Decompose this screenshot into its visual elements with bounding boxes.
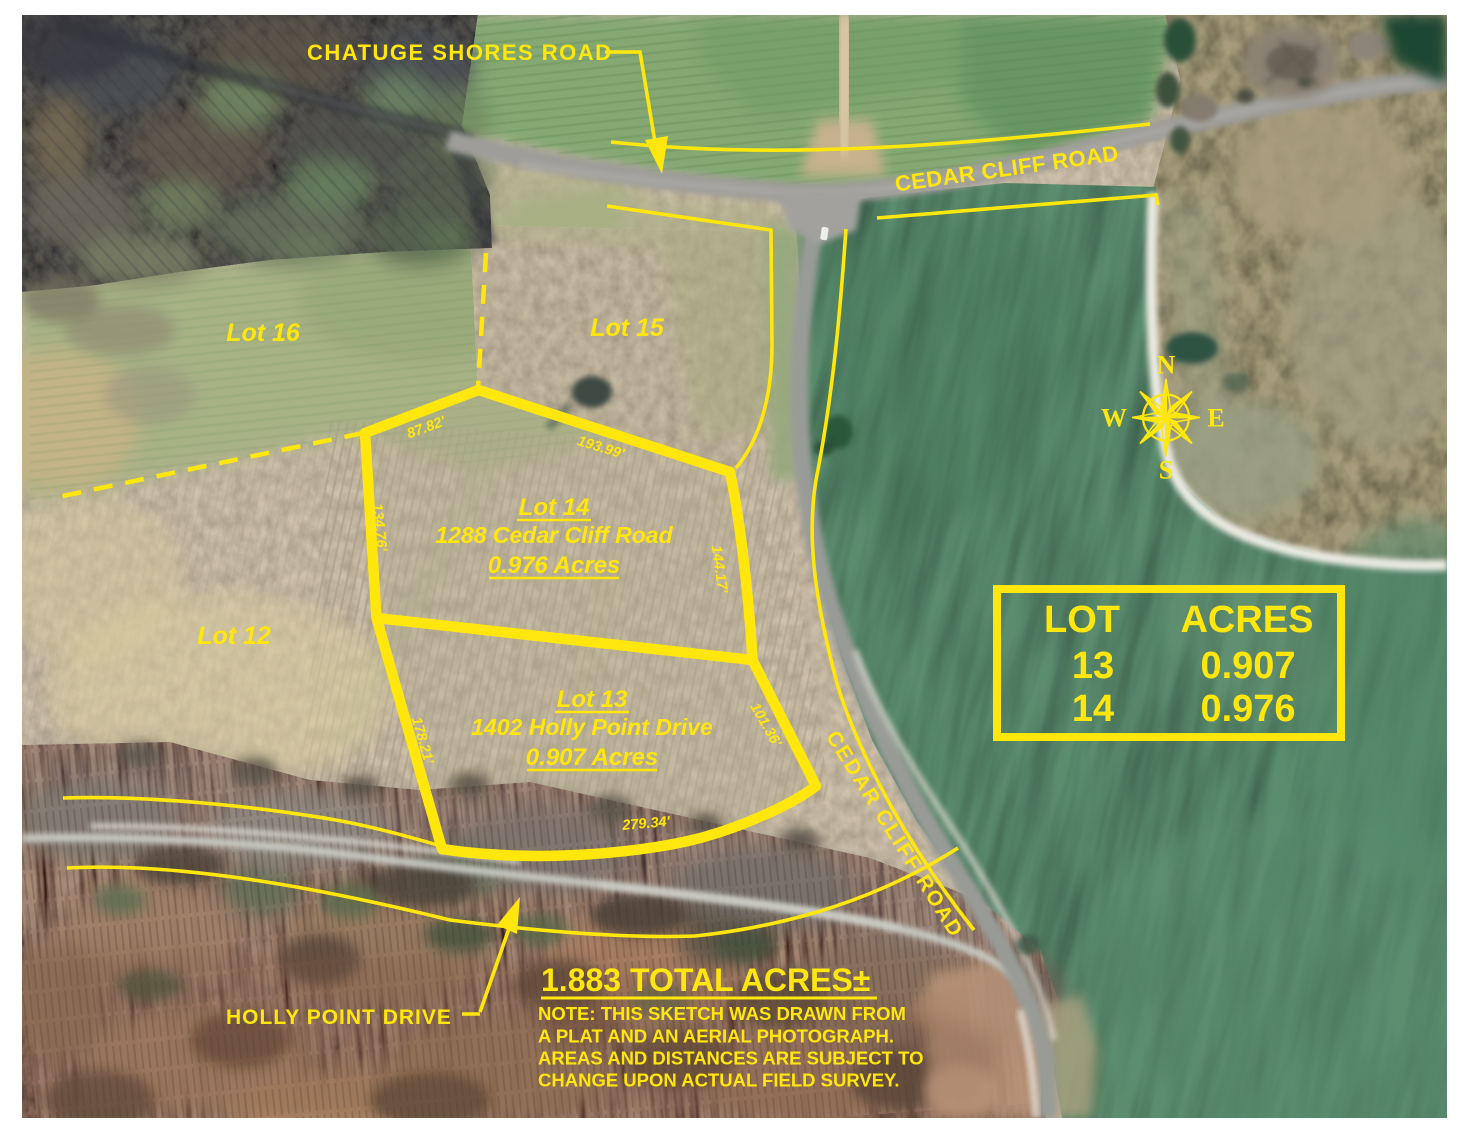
svg-text:CHANGE UPON ACTUAL FIELD SURVE: CHANGE UPON ACTUAL FIELD SURVEY. bbox=[538, 1070, 899, 1091]
svg-text:E: E bbox=[1207, 404, 1224, 433]
svg-text:AREAS AND DISTANCES ARE SUBJEC: AREAS AND DISTANCES ARE SUBJECT TO bbox=[538, 1048, 923, 1069]
svg-text:1.883 TOTAL ACRES±: 1.883 TOTAL ACRES± bbox=[541, 962, 870, 998]
svg-text:W: W bbox=[1101, 404, 1127, 433]
svg-text:14: 14 bbox=[1072, 688, 1114, 730]
svg-text:S: S bbox=[1159, 456, 1173, 485]
svg-text:HOLLY POINT DRIVE: HOLLY POINT DRIVE bbox=[226, 1006, 452, 1029]
svg-text:A PLAT AND AN AERIAL PHOTOGRAP: A PLAT AND AN AERIAL PHOTOGRAPH. bbox=[538, 1026, 894, 1047]
svg-text:0.976 Acres: 0.976 Acres bbox=[488, 552, 621, 579]
svg-text:Lot 14: Lot 14 bbox=[519, 494, 590, 521]
svg-text:0.976: 0.976 bbox=[1200, 688, 1295, 730]
svg-text:0.907 Acres: 0.907 Acres bbox=[526, 744, 659, 771]
svg-text:1288 Cedar Cliff Road: 1288 Cedar Cliff Road bbox=[435, 522, 673, 548]
svg-text:Lot 16: Lot 16 bbox=[226, 319, 301, 347]
svg-text:ACRES: ACRES bbox=[1180, 599, 1313, 641]
svg-text:1402 Holly Point Drive: 1402 Holly Point Drive bbox=[471, 714, 713, 740]
svg-text:LOT: LOT bbox=[1044, 599, 1120, 641]
svg-text:Lot 15: Lot 15 bbox=[590, 314, 665, 342]
svg-text:0.907: 0.907 bbox=[1200, 645, 1295, 687]
svg-text:NOTE: THIS SKETCH WAS DRAWN FR: NOTE: THIS SKETCH WAS DRAWN FROM bbox=[538, 1003, 906, 1024]
svg-text:Lot 12: Lot 12 bbox=[197, 622, 271, 650]
svg-text:13: 13 bbox=[1072, 645, 1114, 687]
svg-text:CHATUGE SHORES ROAD: CHATUGE SHORES ROAD bbox=[307, 40, 613, 65]
svg-text:Lot 13: Lot 13 bbox=[557, 686, 628, 713]
svg-text:N: N bbox=[1157, 351, 1176, 380]
